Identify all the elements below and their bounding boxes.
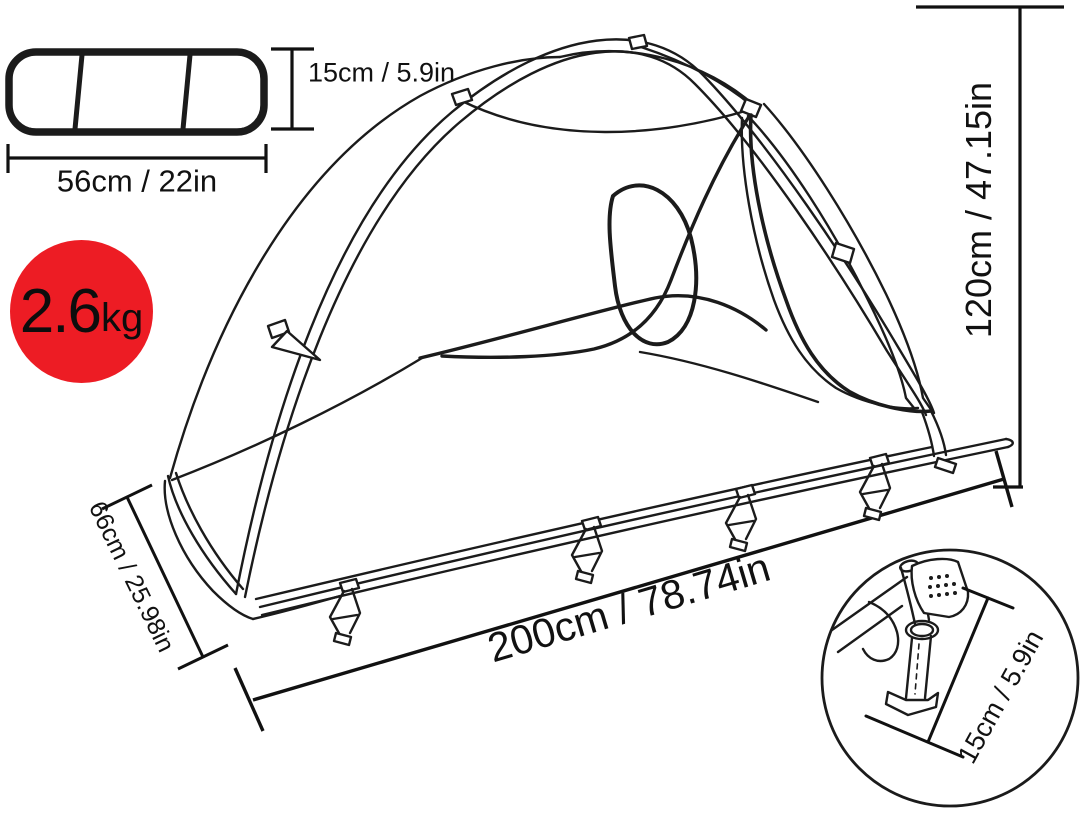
weight-unit: kg — [101, 282, 143, 341]
leg-detail-circle — [822, 550, 1078, 806]
carry-bag-drawing — [9, 52, 264, 132]
weight-value: 2.6 — [20, 276, 100, 347]
bag-height-label: 15cm / 5.9in — [308, 60, 455, 87]
bag-width-label: 56cm / 22in — [57, 166, 217, 197]
diagram-canvas — [0, 0, 1080, 814]
weight-badge: 2.6kg — [10, 240, 153, 383]
product-dimension-diagram: 15cm / 5.9in 56cm / 22in 2.6kg 120cm / 4… — [0, 0, 1080, 814]
tent-height-label: 120cm / 47.15in — [961, 82, 997, 338]
